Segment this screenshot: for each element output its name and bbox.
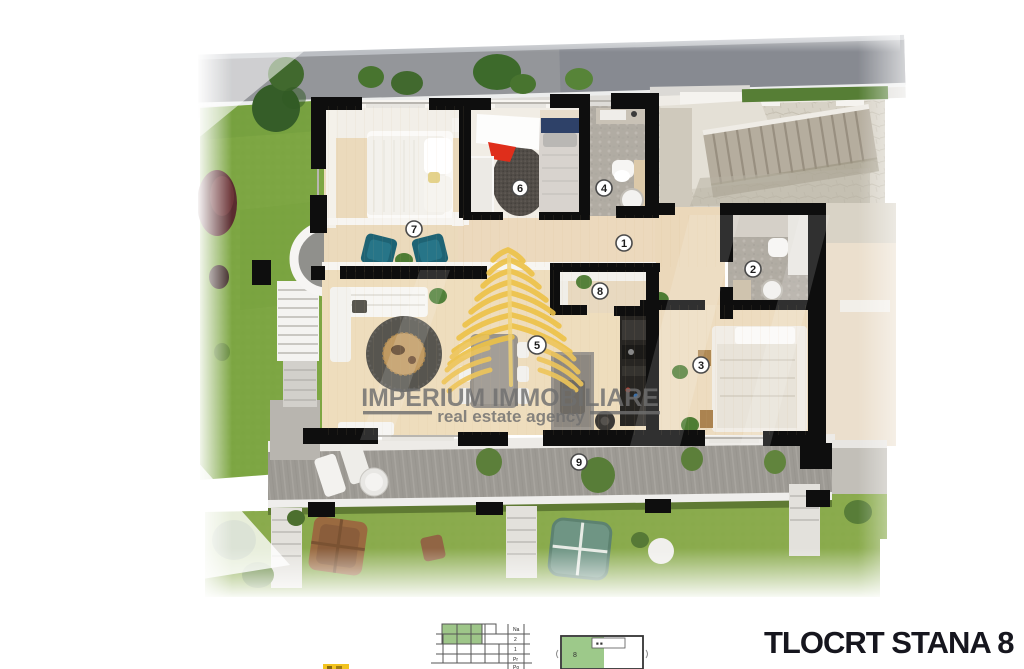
svg-text:3: 3 — [698, 360, 704, 372]
svg-text:4: 4 — [601, 183, 608, 195]
svg-text:Pr: Pr — [513, 657, 518, 663]
svg-text:TLOCRT STANA 8: TLOCRT STANA 8 — [764, 625, 1014, 660]
svg-text:Na: Na — [513, 627, 520, 633]
svg-text:2: 2 — [750, 264, 756, 276]
svg-text:5: 5 — [534, 340, 540, 352]
svg-text:■ ■: ■ ■ — [596, 641, 603, 646]
svg-text:2: 2 — [514, 637, 517, 643]
svg-text:Po: Po — [513, 665, 519, 669]
svg-text:8: 8 — [573, 652, 577, 659]
svg-text:real estate agency: real estate agency — [437, 407, 585, 426]
svg-text:1: 1 — [514, 647, 517, 653]
svg-text:9: 9 — [576, 457, 582, 469]
svg-text:7: 7 — [411, 224, 417, 236]
svg-text:6: 6 — [517, 183, 523, 195]
svg-text:8: 8 — [597, 286, 603, 298]
svg-text:1: 1 — [621, 238, 627, 250]
